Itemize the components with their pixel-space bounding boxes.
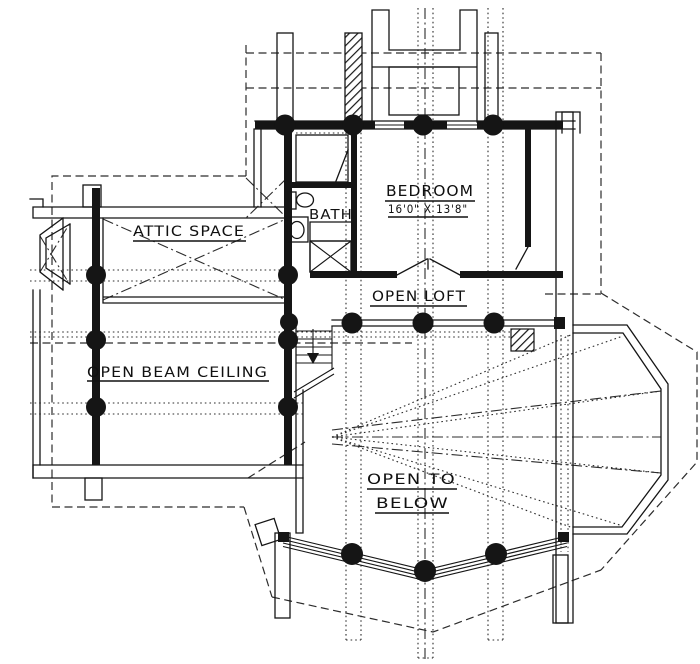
open-to-below-label-line2: BELOW: [376, 496, 449, 512]
floor-plan-drawing: ATTIC SPACE BEDROOM 16'0" X 13'8" BATH O…: [0, 0, 700, 664]
log-post: [414, 560, 436, 582]
left-wing: [30, 122, 303, 500]
log-post: [341, 543, 363, 565]
bedroom-west-wall: [351, 128, 357, 275]
log-post: [280, 313, 298, 331]
log-post: [86, 397, 106, 417]
bathroom: [287, 135, 357, 272]
log-post: [86, 265, 106, 285]
firebox: [389, 67, 459, 115]
log-end-bump: [85, 478, 102, 500]
open-beam-ceiling-label: OPEN BEAM CEILING: [87, 365, 268, 381]
bedroom-dimensions-label: 16'0" X 13'8": [388, 202, 468, 216]
chimney: [277, 10, 498, 122]
log-end-corner: [562, 112, 580, 133]
log-post-section: [485, 33, 498, 122]
log-shear-wall: [92, 188, 100, 465]
wall-column: [275, 533, 290, 618]
loft-opening-mark: [397, 259, 460, 275]
open-loft-label: OPEN LOFT: [372, 289, 466, 305]
bath-label: BATH: [309, 207, 353, 223]
toilet-bowl: [297, 193, 314, 207]
log-post: [483, 115, 504, 136]
bay-window: [40, 218, 70, 290]
prow-window-wall: [573, 325, 668, 534]
door-swing: [516, 247, 528, 269]
roof-overhang-dashed-lines: [30, 45, 697, 632]
stair-arrow-head: [307, 353, 319, 364]
log-post: [484, 313, 505, 334]
stair-break-line: [294, 368, 334, 398]
log-post: [278, 265, 298, 285]
attic-space-label: ATTIC SPACE: [133, 224, 245, 240]
log-post: [278, 397, 298, 417]
open-to-below-label-line1: OPEN TO: [367, 472, 456, 488]
log-post: [86, 330, 106, 350]
closet: [296, 135, 348, 182]
log-end-tick: [255, 518, 281, 545]
east-exterior-wall: [556, 112, 573, 623]
log-post: [413, 313, 434, 334]
floor-plan-page: ATTIC SPACE BEDROOM 16'0" X 13'8" BATH O…: [0, 0, 700, 664]
chase-hatched: [511, 329, 534, 351]
bedroom-east-wall: [525, 128, 531, 247]
wall-column: [553, 555, 568, 623]
log-post-section: [277, 33, 293, 122]
log-post: [342, 313, 363, 334]
chimney-flue-hatched: [345, 33, 362, 122]
sink-basin: [290, 222, 304, 239]
log-post: [278, 330, 298, 350]
log-post: [413, 115, 434, 136]
log-post: [485, 543, 507, 565]
bedroom-label: BEDROOM: [386, 182, 474, 200]
shower-x-mark: [310, 241, 351, 272]
stairs: [294, 326, 334, 398]
